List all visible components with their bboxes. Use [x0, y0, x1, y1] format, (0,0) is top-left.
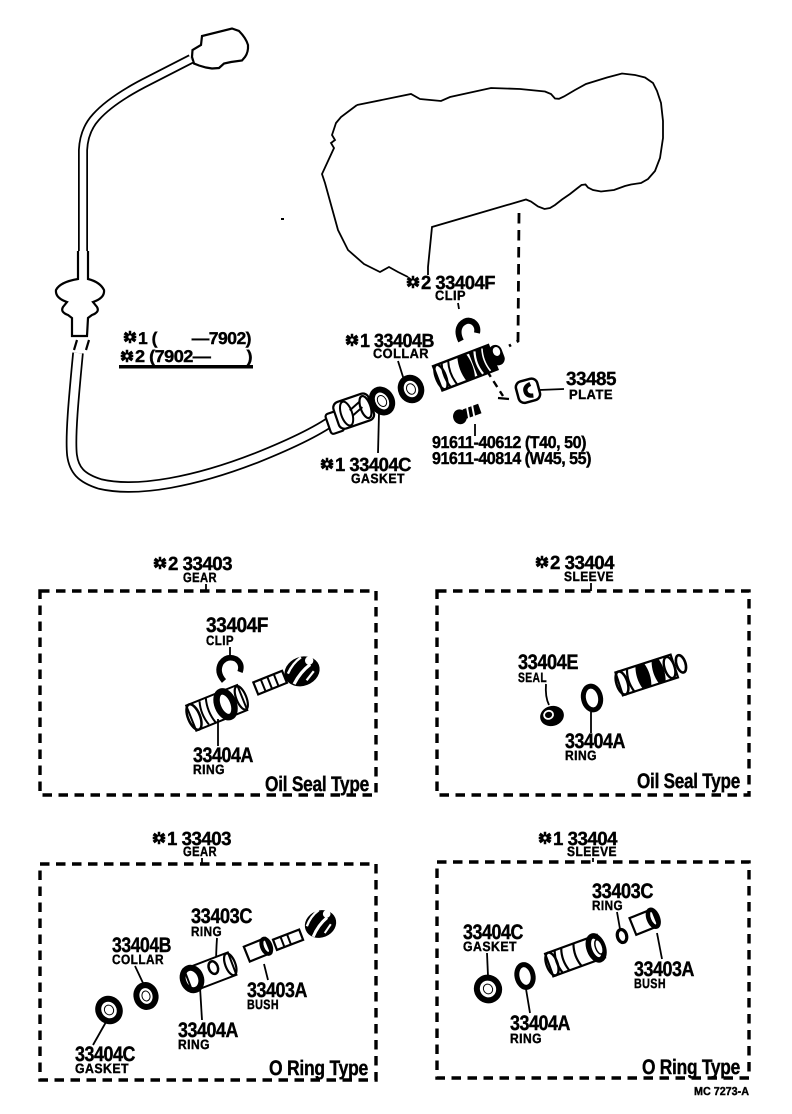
- svg-text:GEAR: GEAR: [183, 844, 217, 859]
- svg-text:O Ring Type: O Ring Type: [269, 1057, 368, 1080]
- svg-text:PLATE: PLATE: [569, 387, 613, 402]
- svg-text:RING: RING: [178, 1037, 210, 1052]
- svg-text:Oil Seal Type: Oil Seal Type: [637, 770, 740, 793]
- svg-text:CLIP: CLIP: [435, 288, 466, 303]
- svg-text:COLLAR: COLLAR: [373, 346, 429, 361]
- svg-text:SLEEVE: SLEEVE: [564, 569, 614, 584]
- svg-text:COLLAR: COLLAR: [112, 952, 164, 967]
- svg-text:91611-40814 (W45, 55): 91611-40814 (W45, 55): [432, 449, 591, 468]
- svg-text:2 (7902— ): 2 (7902— ): [135, 347, 252, 366]
- svg-text:BUSH: BUSH: [634, 976, 666, 991]
- svg-text:RING: RING: [191, 924, 222, 939]
- svg-text:GASKET: GASKET: [351, 471, 405, 486]
- svg-text:SLEEVE: SLEEVE: [567, 844, 617, 859]
- svg-text:GEAR: GEAR: [183, 570, 217, 585]
- svg-text:1 ( —7902): 1 ( —7902): [138, 329, 251, 348]
- svg-text:SEAL: SEAL: [518, 670, 547, 685]
- svg-text:BUSH: BUSH: [247, 997, 279, 1012]
- svg-text:GASKET: GASKET: [463, 939, 517, 954]
- svg-text:RING: RING: [510, 1031, 542, 1046]
- svg-text:Oil Seal Type: Oil Seal Type: [265, 773, 369, 796]
- svg-text:GASKET: GASKET: [75, 1061, 129, 1076]
- svg-text:RING: RING: [592, 898, 623, 913]
- svg-text:MC 7273-A: MC 7273-A: [694, 1086, 749, 1098]
- svg-text:RING: RING: [193, 762, 225, 777]
- svg-text:O Ring Type: O Ring Type: [642, 1056, 740, 1079]
- svg-text:CLIP: CLIP: [206, 633, 234, 648]
- svg-text:RING: RING: [565, 748, 597, 763]
